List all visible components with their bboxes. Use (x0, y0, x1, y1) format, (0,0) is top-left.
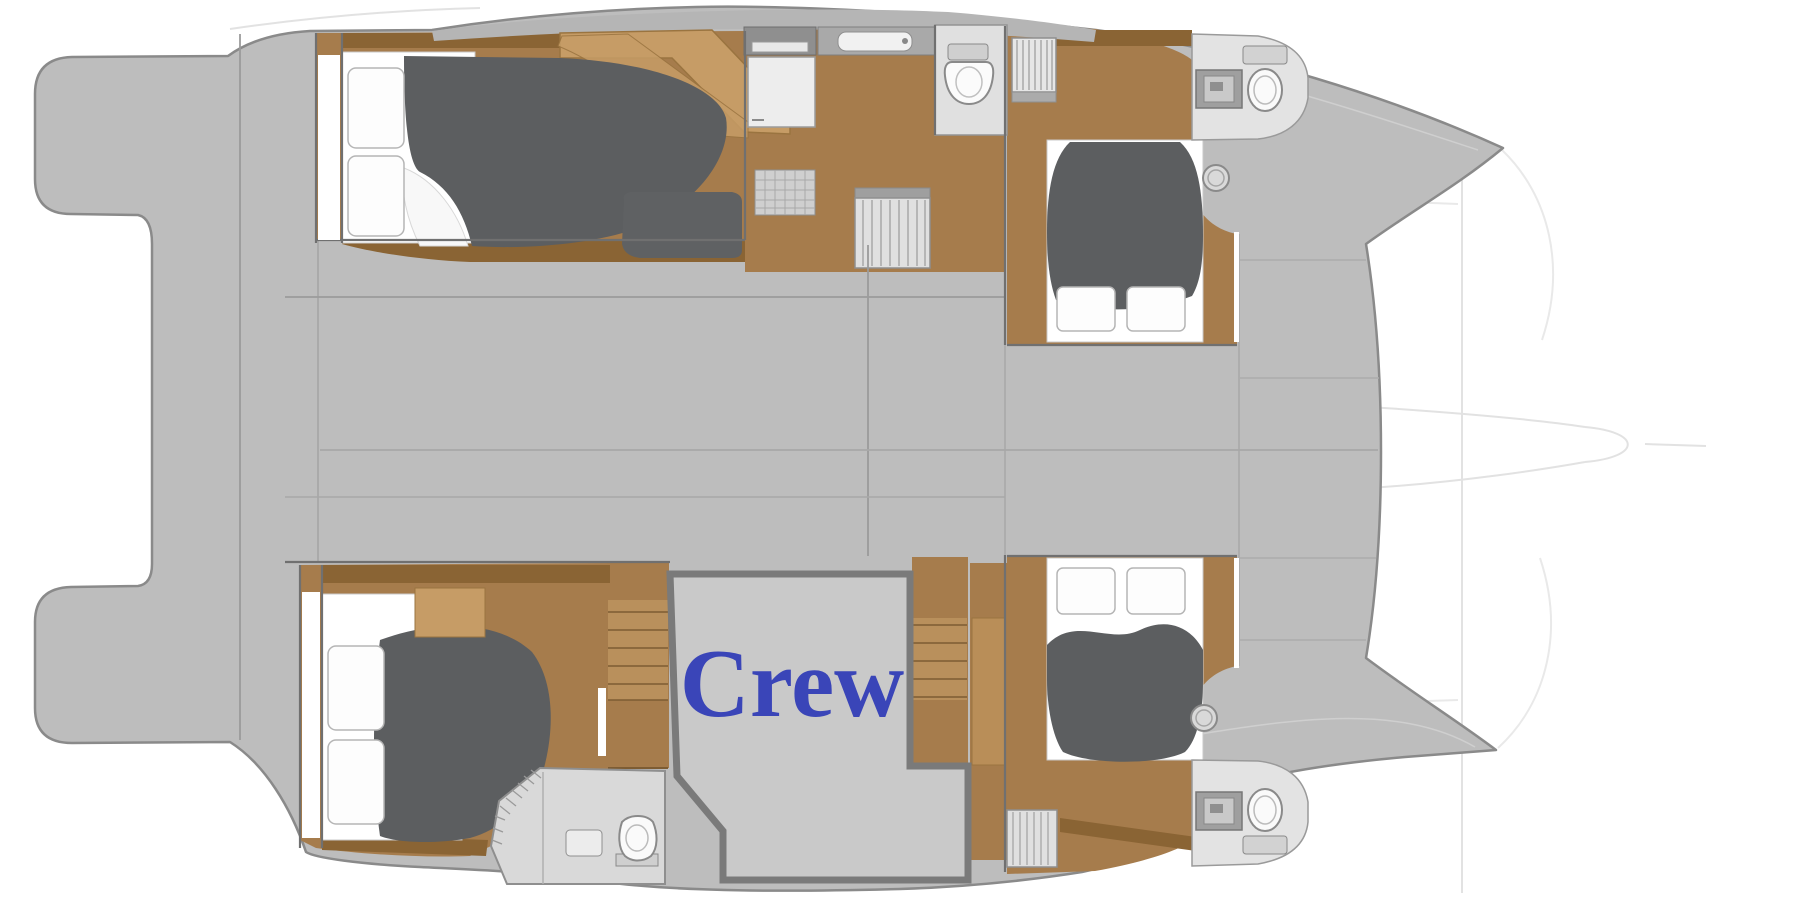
louver-closet (1012, 38, 1056, 102)
door-gap (302, 592, 320, 838)
porthole-port (1203, 165, 1229, 191)
aft-starboard-cabin-top-trim (322, 565, 610, 583)
crew-cabin-label: Crew (680, 630, 904, 737)
deck-hatch-starboard (1196, 792, 1242, 830)
door-gap (598, 688, 606, 756)
bulkhead-gap (1234, 232, 1239, 342)
deck-plan-svg: Crew (0, 0, 1800, 900)
cabin-seat (622, 192, 742, 258)
cabin-counter (415, 588, 485, 637)
stairs-right (913, 618, 967, 700)
bed-pillow (348, 156, 404, 236)
coachroof-outline (230, 8, 480, 29)
louver-hatch-starboard (1007, 810, 1057, 867)
bed-pillow (1057, 287, 1115, 331)
sink-a-basin (752, 42, 808, 52)
bow-pulpit-top (1502, 150, 1553, 340)
companionway-stairs-port (855, 188, 930, 268)
bed-pillow (1127, 568, 1185, 614)
sink-b-basin (838, 32, 912, 51)
bed-duvet (1047, 624, 1203, 761)
toilet-tank (1243, 46, 1287, 64)
fwd-port-bed (1047, 140, 1203, 342)
toilet-tank (948, 44, 988, 60)
sink (566, 830, 602, 856)
wardrobe (972, 618, 1005, 765)
bed-pillow (348, 68, 404, 148)
catamaran-deck-plan: Crew (0, 0, 1800, 900)
bed-duvet (1047, 142, 1203, 309)
mid-port-bathroom (935, 25, 1007, 135)
forestay-line (1645, 444, 1706, 446)
bed-pillow (1127, 287, 1185, 331)
fridge-unit (748, 57, 815, 127)
sink-b-faucet (902, 38, 908, 44)
bow-pulpit-bottom (1498, 558, 1551, 748)
bulkhead-gap (1234, 558, 1239, 668)
bed-pillow (328, 740, 384, 824)
floor-grate (755, 170, 815, 215)
porthole-starboard (1191, 705, 1217, 731)
bowsprit-lines (1370, 407, 1706, 488)
fwd-starboard-bed (1047, 558, 1203, 762)
deck-hatch-port (1196, 70, 1242, 108)
toilet-tank (1243, 836, 1287, 854)
bed-pillow (328, 646, 384, 730)
door-gap (318, 55, 340, 240)
toilet-bowl (619, 816, 656, 861)
crew-bathroom (491, 768, 665, 884)
bed-pillow (1057, 568, 1115, 614)
